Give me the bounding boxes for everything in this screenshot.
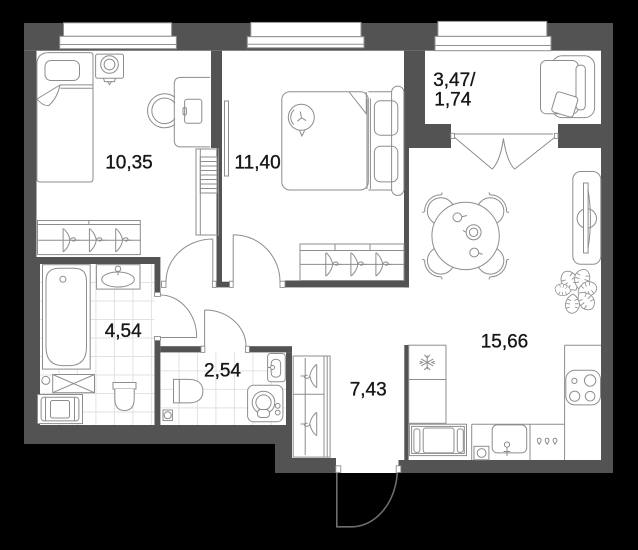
svg-text:2,54: 2,54 [204,361,241,382]
svg-text:11,40: 11,40 [235,152,281,173]
svg-text:15,66: 15,66 [481,332,529,353]
svg-text:4,54: 4,54 [105,321,142,342]
svg-text:1,74: 1,74 [434,90,471,111]
svg-text:7,43: 7,43 [350,379,387,400]
svg-text:3,47/: 3,47/ [433,70,476,91]
svg-text:10,35: 10,35 [105,152,153,173]
